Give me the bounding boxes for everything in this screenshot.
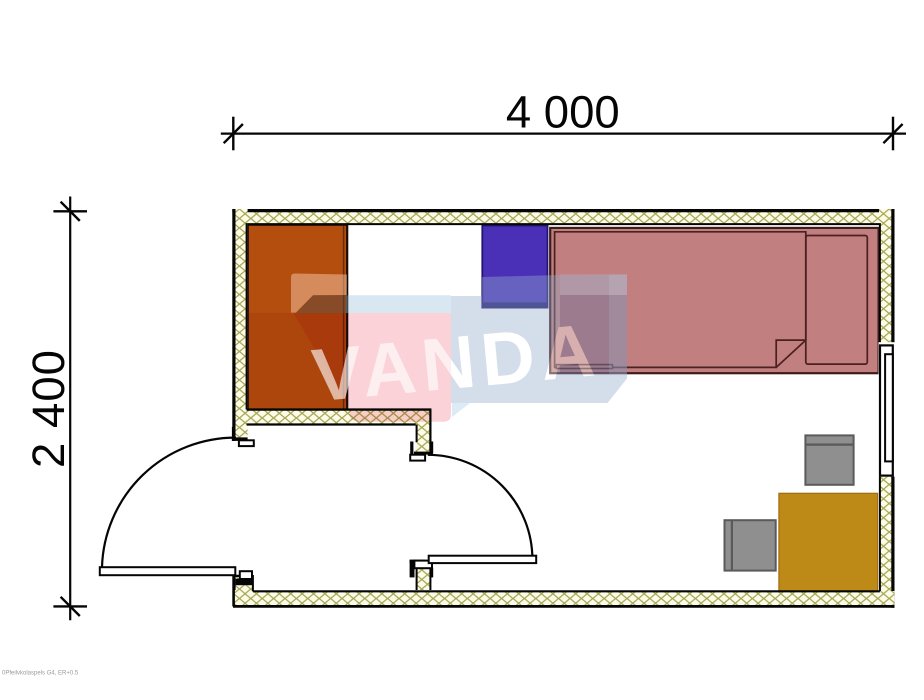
svg-text:2 400: 2 400 [23, 349, 74, 468]
svg-text:0Pfeilvkolaspels G4, ER+0.5: 0Pfeilvkolaspels G4, ER+0.5 [2, 671, 79, 677]
svg-text:4 000: 4 000 [506, 87, 620, 138]
